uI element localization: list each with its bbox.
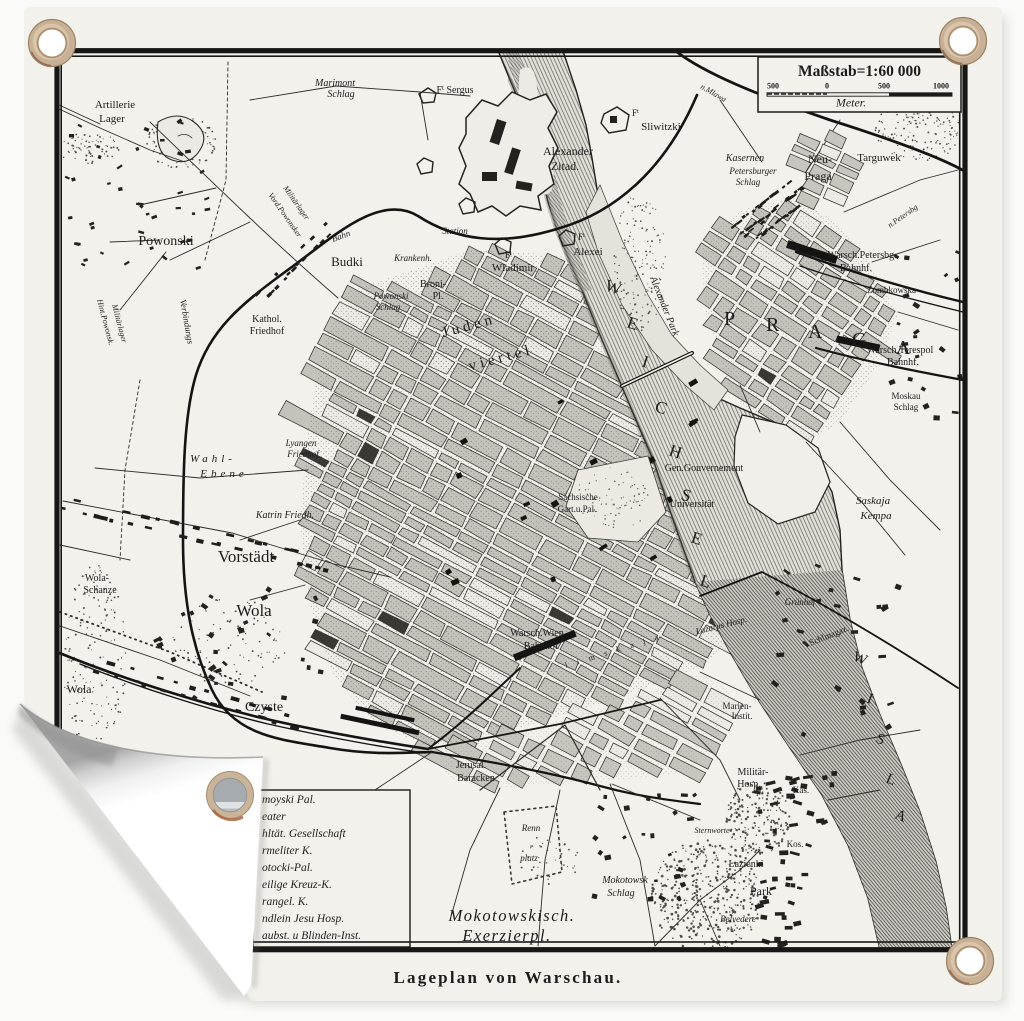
svg-text:ndlein Jesu Hosp.: ndlein Jesu Hosp. bbox=[262, 913, 344, 925]
svg-text:G: G bbox=[852, 329, 866, 351]
svg-text:Grünhof: Grünhof bbox=[785, 597, 817, 607]
svg-text:Instit.: Instit. bbox=[732, 711, 753, 721]
svg-text:Petersburger: Petersburger bbox=[728, 166, 777, 176]
svg-text:Broni-: Broni- bbox=[420, 279, 446, 290]
svg-text:Park: Park bbox=[750, 884, 772, 898]
svg-text:eilige Kreuz-K.: eilige Kreuz-K. bbox=[262, 879, 332, 891]
svg-text:Marien-: Marien- bbox=[723, 701, 752, 711]
svg-text:rangel. K.: rangel. K. bbox=[262, 896, 308, 908]
svg-text:Powonski: Powonski bbox=[138, 234, 193, 249]
svg-text:Lazienki: Lazienki bbox=[729, 859, 764, 870]
svg-text:Sächsische: Sächsische bbox=[558, 492, 598, 502]
svg-text:Gen.Gouvernement: Gen.Gouvernement bbox=[665, 463, 744, 474]
svg-text:Baracken: Baracken bbox=[457, 773, 495, 784]
svg-text:Mokotowskisch.: Mokotowskisch. bbox=[448, 906, 576, 925]
svg-text:Wola: Wola bbox=[236, 601, 272, 620]
svg-text:Saskaja: Saskaja bbox=[856, 495, 891, 507]
svg-text:1000: 1000 bbox=[933, 82, 949, 91]
svg-text:Wola-: Wola- bbox=[85, 573, 109, 584]
svg-text:Artillerie: Artillerie bbox=[95, 99, 135, 111]
svg-text:A: A bbox=[896, 337, 911, 359]
svg-text:Wola: Wola bbox=[66, 682, 92, 696]
svg-text:Militär-: Militär- bbox=[738, 767, 769, 778]
svg-text:Marimont: Marimont bbox=[314, 78, 355, 89]
svg-text:Schlag: Schlag bbox=[327, 89, 354, 100]
svg-text:Sternworte: Sternworte bbox=[694, 826, 730, 835]
svg-text:Friedhof: Friedhof bbox=[286, 449, 320, 459]
svg-text:Warsch.Wien: Warsch.Wien bbox=[510, 628, 564, 639]
svg-text:Wladimir: Wladimir bbox=[492, 262, 534, 274]
svg-text:Moskau: Moskau bbox=[892, 391, 921, 401]
svg-text:platz: platz bbox=[519, 853, 538, 863]
svg-text:Katrin Friedh.: Katrin Friedh. bbox=[255, 510, 314, 521]
svg-text:Kathol.: Kathol. bbox=[252, 314, 282, 325]
svg-text:Targuwek: Targuwek bbox=[857, 152, 901, 164]
svg-text:Pl.: Pl. bbox=[433, 291, 444, 302]
svg-text:Station: Station bbox=[442, 226, 468, 236]
svg-text:moyski Pal.: moyski Pal. bbox=[262, 794, 316, 806]
svg-text:Gart.u.Pal.: Gart.u.Pal. bbox=[558, 504, 597, 514]
svg-text:P: P bbox=[724, 308, 735, 330]
svg-text:Meter.: Meter. bbox=[835, 96, 866, 110]
svg-text:Ebene: Ebene bbox=[199, 468, 247, 480]
svg-text:Belvedere: Belvedere bbox=[720, 914, 756, 924]
svg-text:Hosp.: Hosp. bbox=[737, 779, 761, 790]
svg-text:Kempa: Kempa bbox=[859, 510, 892, 522]
svg-text:Praga: Praga bbox=[804, 169, 832, 183]
svg-text:Schlag: Schlag bbox=[894, 402, 919, 412]
svg-text:Renn: Renn bbox=[521, 823, 541, 833]
svg-text:Wahl-: Wahl- bbox=[190, 453, 236, 465]
svg-text:rmeliter K.: rmeliter K. bbox=[262, 845, 312, 857]
svg-text:500: 500 bbox=[878, 82, 890, 91]
svg-text:aubst. u Blinden-Inst.: aubst. u Blinden-Inst. bbox=[262, 930, 361, 942]
svg-text:Lager: Lager bbox=[99, 113, 125, 125]
svg-text:Sliwitzki: Sliwitzki bbox=[641, 121, 681, 133]
svg-text:Friedhof: Friedhof bbox=[250, 326, 285, 337]
svg-text:Czyste: Czyste bbox=[245, 700, 283, 715]
svg-text:Kos.: Kos. bbox=[787, 839, 804, 849]
svg-text:Bahnhf.: Bahnhf. bbox=[840, 263, 872, 274]
svg-text:0: 0 bbox=[825, 82, 829, 91]
svg-text:Krankenh.: Krankenh. bbox=[393, 253, 432, 263]
svg-text:Kas.: Kas. bbox=[793, 785, 809, 795]
svg-text:Budki: Budki bbox=[331, 254, 363, 269]
svg-text:Schanze: Schanze bbox=[83, 585, 117, 596]
svg-text:Zitad.: Zitad. bbox=[551, 159, 579, 173]
svg-text:500: 500 bbox=[767, 82, 779, 91]
svg-text:Mokotowsk: Mokotowsk bbox=[601, 875, 648, 886]
svg-text:Schlag: Schlag bbox=[736, 177, 761, 187]
svg-text:Neu-: Neu- bbox=[808, 152, 832, 166]
svg-text:Jerusal.: Jerusal. bbox=[456, 760, 486, 771]
svg-text:Vorstädt: Vorstädt bbox=[218, 547, 275, 566]
svg-text:Maßstab=1:60 000: Maßstab=1:60 000 bbox=[798, 63, 921, 80]
svg-text:Kasernen: Kasernen bbox=[725, 153, 764, 164]
svg-text:Powonski: Powonski bbox=[373, 291, 409, 301]
svg-text:R: R bbox=[766, 314, 780, 336]
svg-text:Zombkowska-: Zombkowska- bbox=[867, 285, 919, 295]
svg-text:Alexei: Alexei bbox=[573, 246, 602, 258]
svg-text:otocki-Pal.: otocki-Pal. bbox=[262, 862, 313, 874]
svg-text:Schlag: Schlag bbox=[376, 302, 401, 312]
svg-text:A: A bbox=[808, 321, 823, 343]
svg-text:Universität: Universität bbox=[670, 499, 715, 510]
svg-text:Warsch.Petersbg.: Warsch.Petersbg. bbox=[827, 250, 896, 261]
svg-text:Schlag: Schlag bbox=[607, 888, 634, 899]
svg-text:Alexander: Alexander bbox=[543, 144, 593, 158]
svg-text:hltät. Gesellschaft: hltät. Gesellschaft bbox=[262, 828, 346, 840]
svg-text:Bahnhof: Bahnhof bbox=[524, 641, 559, 652]
svg-text:Lageplan von Warschau.: Lageplan von Warschau. bbox=[394, 968, 623, 987]
svg-text:Lyangen: Lyangen bbox=[285, 438, 317, 448]
